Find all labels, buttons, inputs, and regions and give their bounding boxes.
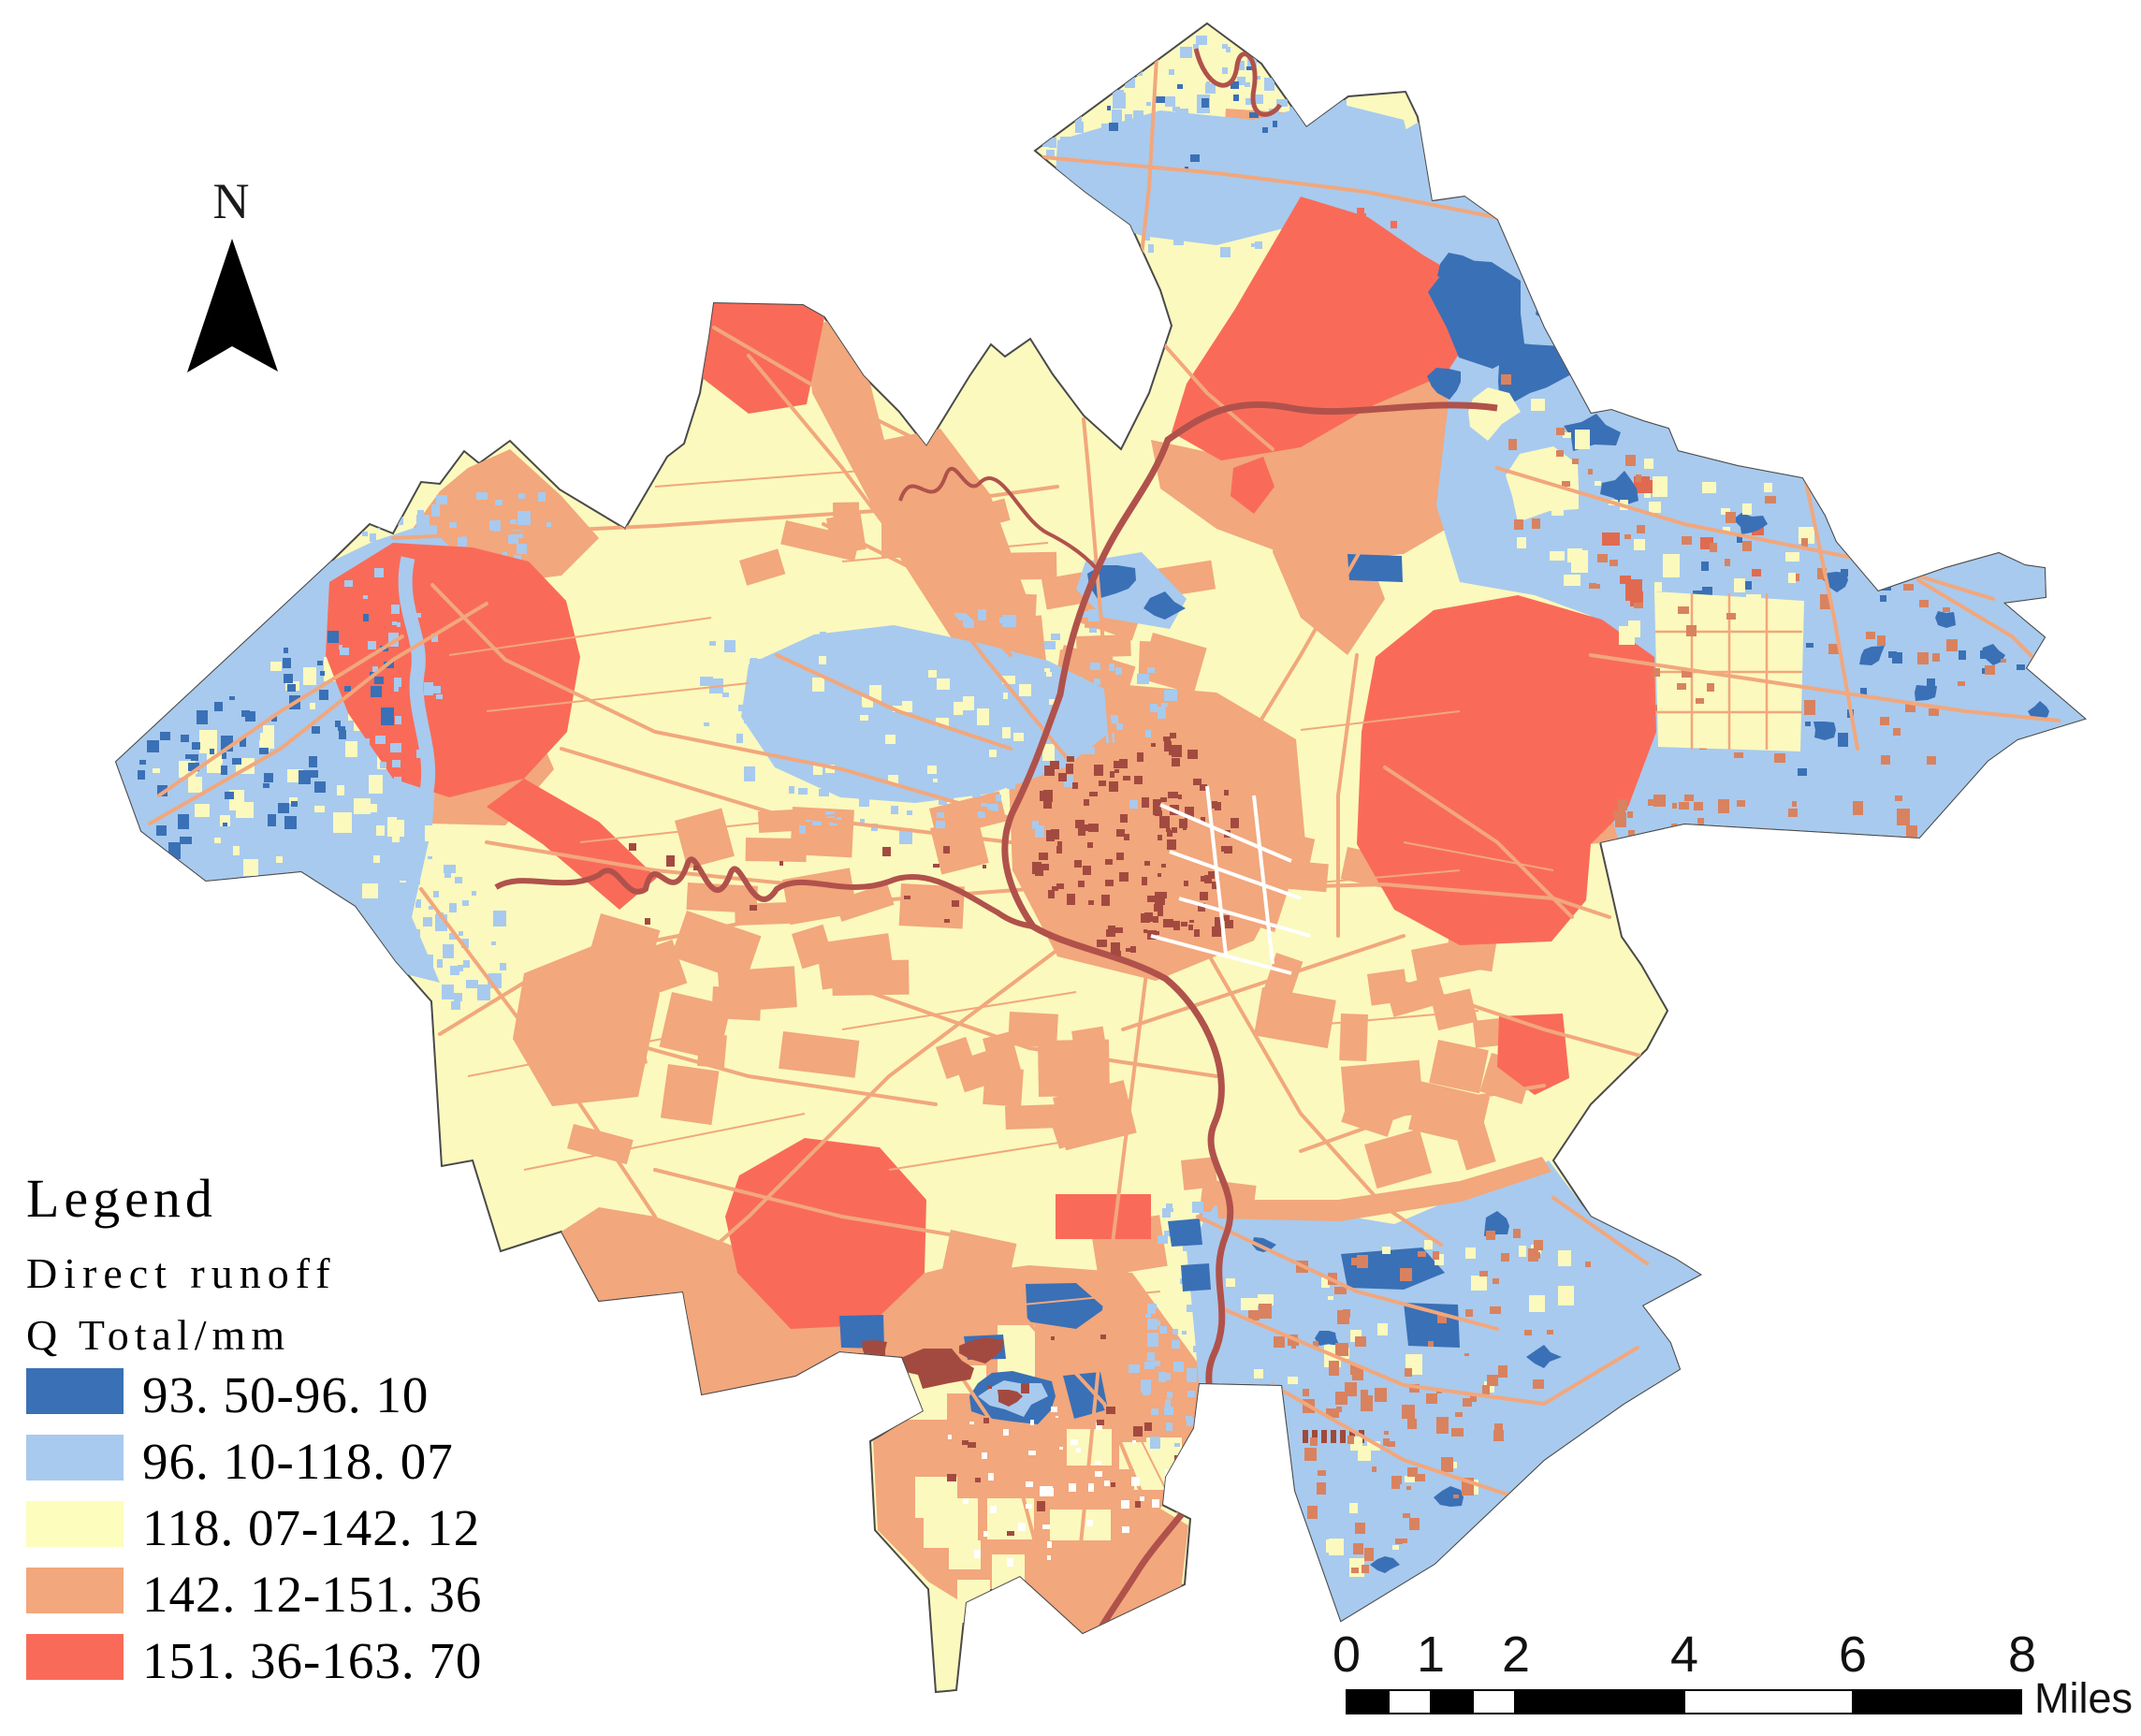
svg-text:2: 2	[1502, 1627, 1530, 1683]
svg-text:142. 12-151. 36: 142. 12-151. 36	[142, 1566, 482, 1623]
svg-text:Q Total/mm: Q Total/mm	[26, 1311, 290, 1359]
svg-text:93. 50-96. 10: 93. 50-96. 10	[142, 1366, 429, 1423]
svg-text:0: 0	[1333, 1627, 1361, 1683]
svg-text:4: 4	[1670, 1627, 1698, 1683]
svg-text:151. 36-163. 70: 151. 36-163. 70	[142, 1632, 482, 1689]
svg-text:1: 1	[1417, 1627, 1445, 1683]
svg-text:8: 8	[2008, 1627, 2036, 1683]
svg-text:N: N	[213, 173, 250, 229]
svg-text:96. 10-118. 07: 96. 10-118. 07	[142, 1433, 454, 1490]
svg-text:Direct runoff: Direct runoff	[26, 1249, 337, 1297]
svg-text:Miles: Miles	[2034, 1674, 2133, 1722]
svg-text:Legend: Legend	[26, 1168, 217, 1229]
svg-text:6: 6	[1839, 1627, 1867, 1683]
svg-text:118. 07-142. 12: 118. 07-142. 12	[142, 1499, 480, 1556]
